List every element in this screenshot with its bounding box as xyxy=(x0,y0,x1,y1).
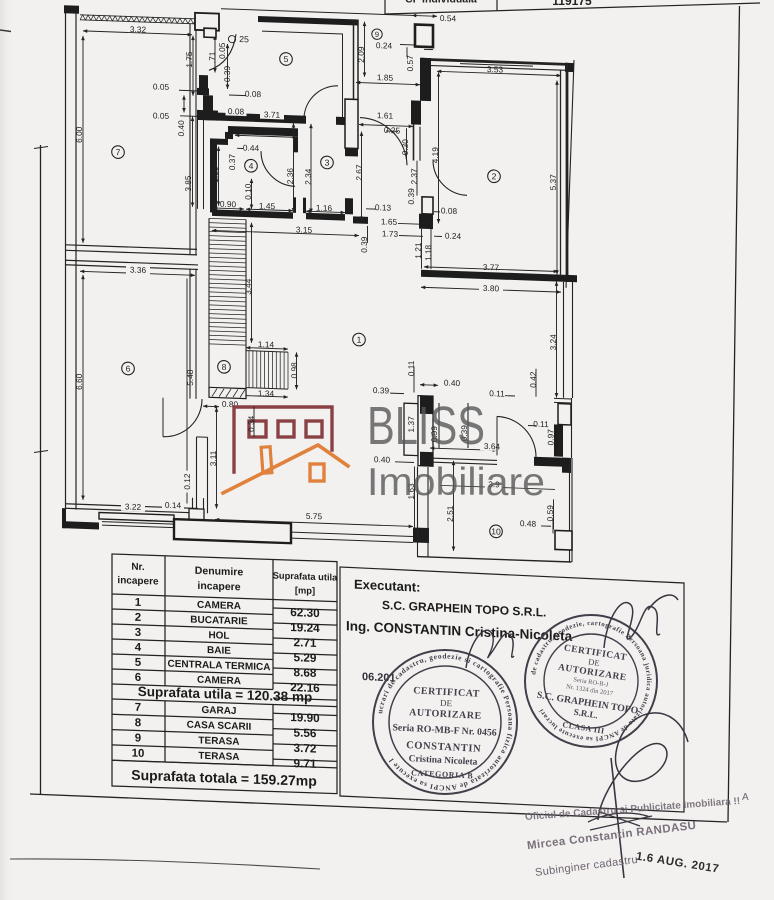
svg-text:6.60: 6.60 xyxy=(74,373,84,390)
svg-text:7: 7 xyxy=(116,147,121,157)
svg-text:3.71: 3.71 xyxy=(264,109,281,120)
svg-text:3.32: 3.32 xyxy=(130,24,147,35)
svg-text:9: 9 xyxy=(135,732,141,744)
svg-text:0.14: 0.14 xyxy=(165,500,182,511)
svg-text:5: 5 xyxy=(135,657,142,669)
svg-text:2: 2 xyxy=(492,171,497,181)
svg-text:3.77: 3.77 xyxy=(483,262,500,273)
svg-text:2.34: 2.34 xyxy=(303,168,313,185)
svg-text:1.16: 1.16 xyxy=(316,203,333,214)
svg-text:3.44: 3.44 xyxy=(243,278,253,295)
svg-text:incapere: incapere xyxy=(117,575,159,587)
svg-text:0.05: 0.05 xyxy=(153,81,170,92)
svg-text:BUCATARIE: BUCATARIE xyxy=(190,614,248,627)
svg-text:1.65: 1.65 xyxy=(381,216,398,227)
svg-text:0.08: 0.08 xyxy=(245,89,262,100)
svg-text:1.21: 1.21 xyxy=(413,242,423,259)
svg-text:6: 6 xyxy=(135,672,141,684)
svg-text:1.34: 1.34 xyxy=(258,388,275,399)
svg-text:0.57: 0.57 xyxy=(405,55,415,72)
svg-text:3.85: 3.85 xyxy=(183,175,193,192)
svg-text:0.59: 0.59 xyxy=(545,505,555,522)
svg-text:6: 6 xyxy=(126,363,131,373)
svg-text:0.05: 0.05 xyxy=(217,42,227,59)
svg-text:0.11: 0.11 xyxy=(533,419,549,430)
svg-text:CF Individuala: CF Individuala xyxy=(405,0,477,5)
svg-text:9: 9 xyxy=(375,30,379,39)
svg-text:0.97: 0.97 xyxy=(545,429,555,446)
svg-text:1.61: 1.61 xyxy=(377,110,394,121)
svg-text:A: A xyxy=(742,792,749,803)
svg-text:2: 2 xyxy=(135,612,141,624)
svg-text:1.91: 1.91 xyxy=(258,126,275,137)
svg-text:1.85: 1.85 xyxy=(377,72,394,83)
svg-text:0.30: 0.30 xyxy=(400,139,410,156)
svg-text:3.36: 3.36 xyxy=(130,265,147,276)
svg-text:0.24: 0.24 xyxy=(376,40,393,51)
svg-text:Imobiliare: Imobiliare xyxy=(367,461,545,504)
svg-text:1.18: 1.18 xyxy=(423,244,433,261)
svg-text:0.42: 0.42 xyxy=(528,371,538,388)
svg-text:CAMERA: CAMERA xyxy=(197,600,241,612)
svg-text:19.24: 19.24 xyxy=(290,620,320,635)
svg-text:3.80: 3.80 xyxy=(483,283,500,294)
svg-text:5.75: 5.75 xyxy=(306,511,323,522)
svg-text:2.71: 2.71 xyxy=(294,635,317,650)
svg-text:0.08: 0.08 xyxy=(441,205,458,216)
svg-text:HOL: HOL xyxy=(208,630,229,642)
svg-text:TERASA: TERASA xyxy=(198,751,239,763)
svg-text:1.73: 1.73 xyxy=(382,228,399,239)
svg-text:0.25: 0.25 xyxy=(384,125,401,136)
svg-text:1: 1 xyxy=(135,597,142,609)
svg-text:0.40: 0.40 xyxy=(176,120,186,137)
svg-text:4: 4 xyxy=(249,161,254,171)
svg-text:CASA SCARII: CASA SCARII xyxy=(187,720,252,733)
svg-text:4.19: 4.19 xyxy=(430,147,440,164)
svg-text:5.37: 5.37 xyxy=(548,174,558,191)
svg-text:3.72: 3.72 xyxy=(294,741,317,756)
svg-text:5.29: 5.29 xyxy=(294,650,317,665)
svg-text:2.51: 2.51 xyxy=(445,505,455,522)
svg-text:DE: DE xyxy=(588,656,601,668)
svg-text:0.39: 0.39 xyxy=(222,65,232,82)
svg-text:Executant:: Executant: xyxy=(354,577,420,595)
svg-text:Nr.: Nr. xyxy=(131,562,145,573)
svg-text:0.90: 0.90 xyxy=(220,199,237,210)
svg-text:9.71: 9.71 xyxy=(294,756,317,771)
svg-text:1.75: 1.75 xyxy=(184,51,194,68)
svg-text:3: 3 xyxy=(135,627,141,639)
svg-text:0.10: 0.10 xyxy=(243,183,253,200)
svg-text:[mp]: [mp] xyxy=(295,585,315,596)
svg-text:0.11: 0.11 xyxy=(489,388,505,399)
svg-text:10: 10 xyxy=(132,748,145,760)
svg-text:0.12: 0.12 xyxy=(182,473,192,490)
svg-text:3.11: 3.11 xyxy=(208,450,218,466)
svg-text:119175: 119175 xyxy=(552,0,592,8)
svg-text:7: 7 xyxy=(135,702,141,714)
svg-text:3.24: 3.24 xyxy=(548,334,558,351)
svg-text:1: 1 xyxy=(357,335,362,345)
svg-text:0.39: 0.39 xyxy=(406,188,416,205)
svg-text:0.08: 0.08 xyxy=(228,106,245,117)
svg-text:5: 5 xyxy=(284,54,289,64)
svg-text:.71: .71 xyxy=(207,51,217,63)
svg-text:2.37: 2.37 xyxy=(409,168,419,185)
svg-text:6.00: 6.00 xyxy=(74,126,84,143)
svg-text:0.37: 0.37 xyxy=(227,153,237,170)
svg-text:8: 8 xyxy=(135,717,142,729)
svg-text:25: 25 xyxy=(239,34,249,44)
svg-text:5.48: 5.48 xyxy=(185,369,195,386)
svg-text:0.98: 0.98 xyxy=(289,362,299,379)
svg-text:2.36: 2.36 xyxy=(285,168,295,185)
svg-text:0.39: 0.39 xyxy=(373,385,390,396)
svg-text:2.09: 2.09 xyxy=(356,46,366,63)
svg-text:0.39: 0.39 xyxy=(359,236,369,253)
svg-text:0.54: 0.54 xyxy=(440,13,457,24)
svg-text:3.64: 3.64 xyxy=(484,441,501,452)
svg-text:8.68: 8.68 xyxy=(294,665,317,680)
svg-text:1.89: 1.89 xyxy=(210,166,220,183)
svg-text:0.13: 0.13 xyxy=(375,202,392,213)
svg-text:1.45: 1.45 xyxy=(259,201,276,212)
svg-text:5.56: 5.56 xyxy=(294,725,317,740)
svg-text:0.44: 0.44 xyxy=(243,142,260,153)
svg-text:incapere: incapere xyxy=(197,580,240,593)
svg-text:TERASA: TERASA xyxy=(198,735,239,747)
svg-text:2.67: 2.67 xyxy=(354,164,364,181)
svg-text:0.05: 0.05 xyxy=(153,110,170,121)
svg-text:GARAJ: GARAJ xyxy=(201,705,236,717)
svg-text:0.11: 0.11 xyxy=(406,360,416,376)
svg-text:8: 8 xyxy=(222,362,227,372)
svg-text:3.22: 3.22 xyxy=(125,501,142,512)
svg-text:BAIE: BAIE xyxy=(207,645,231,657)
svg-text:0.48: 0.48 xyxy=(520,518,537,529)
svg-text:3.53: 3.53 xyxy=(487,64,504,75)
svg-text:62.30: 62.30 xyxy=(290,605,320,620)
svg-text:4: 4 xyxy=(135,642,142,654)
svg-text:19.90: 19.90 xyxy=(290,710,320,725)
svg-text:0.24: 0.24 xyxy=(445,231,462,242)
svg-text:Denumire: Denumire xyxy=(195,565,244,579)
svg-text:1.14: 1.14 xyxy=(258,339,275,350)
svg-text:0.40: 0.40 xyxy=(444,378,461,389)
svg-text:0.34: 0.34 xyxy=(246,415,256,432)
svg-text:10: 10 xyxy=(491,526,501,536)
svg-text:3.15: 3.15 xyxy=(296,224,313,235)
svg-text:DE: DE xyxy=(440,698,453,709)
svg-text:3: 3 xyxy=(325,157,330,167)
